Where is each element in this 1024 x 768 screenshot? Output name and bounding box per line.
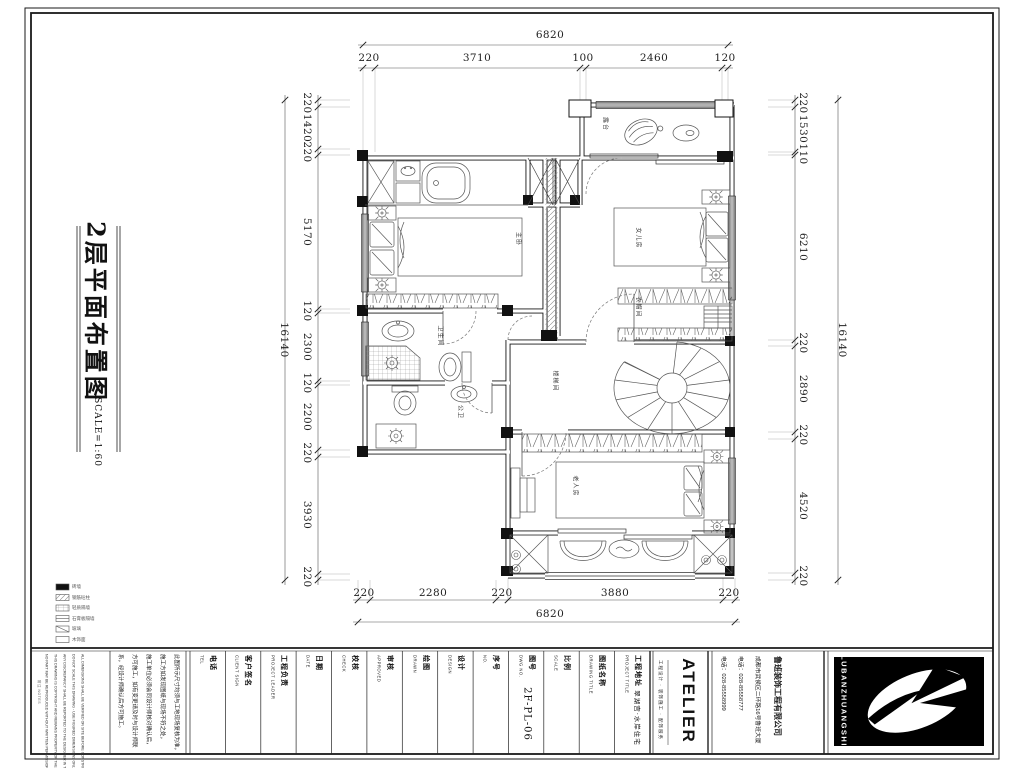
dim-bottom-seg: 220 <box>353 587 374 599</box>
dim-top-seg: 100 <box>572 52 593 64</box>
room-label-bath: 卫生间 <box>437 325 446 346</box>
field-sub-design: DESIGN <box>448 655 453 674</box>
dim-top-seg: 220 <box>358 52 379 64</box>
field-sub-project-leader: PROJECT LEADER <box>271 655 276 699</box>
dim-right-seg: 110 <box>797 143 809 164</box>
dim-right-seg: 220 <box>797 332 809 353</box>
dim-left-seg: 2200 <box>301 403 313 431</box>
field-label-scale: 比例 <box>562 655 572 671</box>
room-label-stair: 楼梯间 <box>552 370 561 391</box>
room-label-terrace: 露台 <box>602 117 611 131</box>
sheet-frame <box>25 8 999 759</box>
field-sub-drawing-title: DRAWING TITLE <box>589 655 594 694</box>
room-label-elder: 老人房 <box>572 475 581 496</box>
dim-left-seg: 220 <box>301 442 313 463</box>
floor-plan-linework <box>0 0 1024 768</box>
sheet-title: 2层平面布置图 <box>81 221 116 403</box>
field-label-design: 设计 <box>456 655 466 671</box>
field-sub-check: CHECK <box>342 655 347 672</box>
spiral-stair <box>614 342 730 434</box>
field-label-project-leader: 工程负责 <box>279 655 289 687</box>
room-label-wc: 公卫 <box>457 405 466 419</box>
field-label-approved: 审核 <box>385 655 395 671</box>
dim-left-seg: 120 <box>301 300 313 321</box>
field-value-project-title: 翠湖宫·水岸住宅 <box>633 690 643 746</box>
field-label-date: 日期 <box>314 655 324 671</box>
field-sub-dwg-no: DWG NO. <box>519 655 524 677</box>
dim-bottom-seg: 3880 <box>601 587 629 599</box>
dim-right-seg: 4520 <box>797 492 809 520</box>
field-sub-client-sign: CLIENT SIGN <box>235 655 240 687</box>
wall-legend-swatches <box>56 584 69 643</box>
dim-left-seg: 120 <box>301 372 313 393</box>
atelier-title: ATELIER <box>678 658 698 743</box>
dim-left-seg: 3930 <box>301 501 313 529</box>
dim-left-overall: 16140 <box>278 322 290 357</box>
dim-left-seg: 1420 <box>301 114 313 142</box>
drawing-sheet: 2层平面布置图 SCALE=1:60 6820 220 3710 100 246… <box>0 0 1024 768</box>
legend-item: 钢筋砼柱 <box>72 595 90 601</box>
field-label-tel: 电话 <box>208 655 218 671</box>
dim-right-seg: 220 <box>797 92 809 113</box>
field-label-drawing-title: 图纸名称 <box>597 655 607 687</box>
dim-right-seg: 6210 <box>797 233 809 261</box>
company-tel1: 电话：028-85558777 <box>737 656 746 748</box>
legend-item: 石膏板隔墙 <box>72 616 95 622</box>
dim-top-overall: 6820 <box>536 29 564 41</box>
field-label-dwg-no: 图号 <box>527 655 537 671</box>
dim-top-seg: 3710 <box>463 52 491 64</box>
dim-left-seg: 5170 <box>301 218 313 246</box>
room-label-daughter: 女儿房 <box>635 227 644 248</box>
field-value-dwg-no: 2F-PL-06 <box>522 687 533 741</box>
atelier-tagline: 工程设计 · 装饰施工 · 配饰服务 <box>657 660 663 740</box>
dim-left-seg: 220 <box>301 566 313 587</box>
legend-item: 玻璃 <box>72 626 81 632</box>
company-address: 成都市武侯区二环路16号鲁班大厦 <box>754 656 763 748</box>
field-label-client-sign: 客户签名 <box>243 655 253 687</box>
dim-right-seg: 1530 <box>797 115 809 143</box>
title-block-side-note: 附注 NOTES <box>36 680 41 704</box>
field-label-drawn: 绘图 <box>421 655 431 671</box>
field-sub-drawn: DRAWN <box>413 655 418 673</box>
field-label-no: 序号 <box>491 655 501 671</box>
dim-top-seg: 120 <box>714 52 735 64</box>
field-sub-no: NO. <box>483 655 488 664</box>
field-label-check: 校核 <box>350 655 360 671</box>
field-sub-scale: SCALE <box>554 655 559 671</box>
dim-left-seg: 2300 <box>301 333 313 361</box>
legend-item: 轻质隔墙 <box>72 605 90 611</box>
field-sub-date: DATE <box>306 655 311 668</box>
field-sub-project-title: PROJECT TITLE <box>625 655 630 693</box>
field-sub-tel: TEL <box>200 655 205 664</box>
legend-item: 木饰面 <box>72 637 86 643</box>
field-label-project-title: 工程地址 <box>633 655 643 687</box>
dimension-lines <box>285 45 838 622</box>
dim-left-seg: 220 <box>301 141 313 162</box>
dim-left-seg: 220 <box>301 92 313 113</box>
dim-right-seg: 2890 <box>797 375 809 403</box>
construction-notes-cn: 此图所示尺寸均须与工地现场复核为准， 施工方如发现图纸与现场不符之处， 施工单位… <box>114 654 184 748</box>
dim-bottom-seg: 220 <box>491 587 512 599</box>
insulated-wall-hatch <box>546 158 558 336</box>
company-name: 鲁班装饰工程有限公司 <box>772 656 783 748</box>
dim-bottom-seg: 220 <box>718 587 739 599</box>
legend-item: 砖墙 <box>72 584 81 590</box>
sheet-scale-note: SCALE=1:60 <box>92 397 102 467</box>
construction-notes-en: ALL DIMENSIONS SHALL BE VERIFIED ON SITE… <box>42 654 87 748</box>
company-tel2: 电话：028-85558999 <box>720 656 729 748</box>
dim-right-seg: 220 <box>797 424 809 445</box>
company-info: 鲁班装饰工程有限公司 成都市武侯区二环路16号鲁班大厦 电话：028-85558… <box>716 656 788 748</box>
dim-right-overall: 16140 <box>836 322 848 357</box>
logo-text: LUBANZHUANGSHI <box>840 655 849 747</box>
dim-top-seg: 2460 <box>640 52 668 64</box>
field-sub-approved: APPROVED <box>377 655 382 682</box>
dim-bottom-overall: 6820 <box>536 608 564 620</box>
room-label-cloak: 衣帽间 <box>635 296 644 317</box>
company-logo <box>834 656 984 746</box>
dim-right-seg: 220 <box>797 565 809 586</box>
dim-bottom-seg: 2280 <box>419 587 447 599</box>
room-label-master: 主卧 <box>515 232 524 246</box>
